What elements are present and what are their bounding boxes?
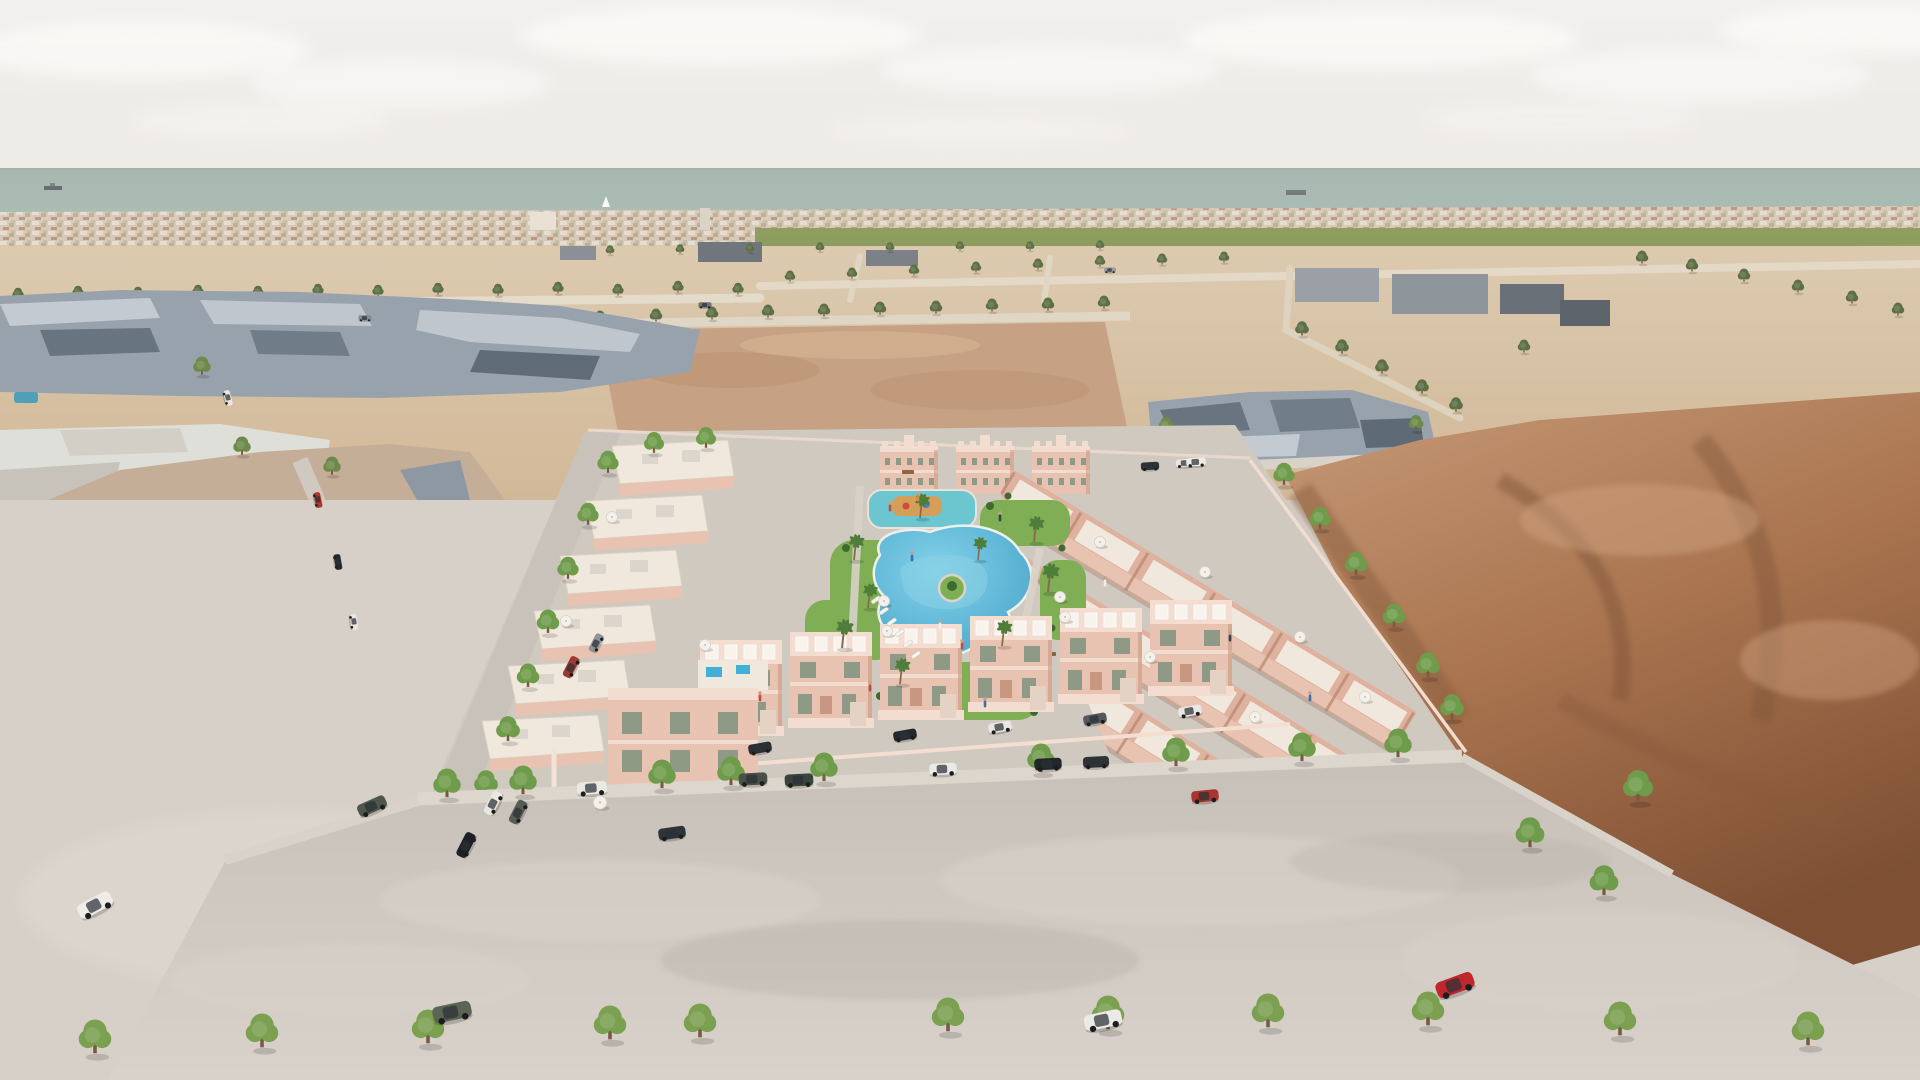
island-shrub <box>947 581 957 591</box>
plunge-pool <box>706 667 722 677</box>
front-townhouse <box>878 624 964 720</box>
road-highlight <box>380 860 820 940</box>
roof-tower <box>904 435 914 447</box>
person <box>983 697 986 707</box>
play-slide <box>903 503 910 510</box>
front-townhouse <box>1148 600 1234 696</box>
car <box>929 763 957 779</box>
white-building-roof <box>60 428 188 456</box>
car <box>1186 457 1206 468</box>
person <box>910 551 913 561</box>
crenellation <box>894 441 900 446</box>
apartment-blocks <box>880 435 1090 494</box>
cornice <box>608 688 758 700</box>
townhouse-roof <box>560 550 682 606</box>
person <box>888 501 891 511</box>
car <box>1083 756 1110 771</box>
person <box>998 511 1001 521</box>
townhouse-roof <box>586 495 708 551</box>
car <box>1141 462 1160 472</box>
person <box>960 639 963 649</box>
roof-tower <box>980 435 990 447</box>
road-shade <box>1290 832 1610 892</box>
car <box>784 773 813 789</box>
string-course <box>956 470 1014 473</box>
crenellation <box>1006 441 1012 446</box>
dirt-highlight <box>1740 620 1920 700</box>
crenellation <box>918 441 924 446</box>
person <box>758 691 761 701</box>
car <box>738 772 767 788</box>
townhouse-roof <box>612 440 734 496</box>
roof-tower <box>1056 435 1066 447</box>
aerial-render <box>0 0 1920 1080</box>
string-course <box>1032 470 1090 473</box>
person <box>1103 576 1106 586</box>
plunge-pool <box>736 665 750 674</box>
string-course <box>608 740 758 744</box>
crenellation <box>1082 441 1088 446</box>
person <box>938 619 941 629</box>
front-townhouse <box>788 632 874 728</box>
haze-overlay <box>0 0 1920 420</box>
crenellation <box>970 441 976 446</box>
person <box>916 491 919 501</box>
side-shade <box>1086 450 1090 494</box>
road-highlight <box>170 944 530 1016</box>
dirt-highlight <box>1520 484 1760 556</box>
road-shade <box>660 920 1140 1000</box>
crenellation <box>930 441 936 446</box>
person <box>1308 691 1311 701</box>
crenellation <box>1046 441 1052 446</box>
person <box>1228 631 1231 641</box>
side-shade <box>934 450 938 494</box>
crenellation <box>1070 441 1076 446</box>
crenellation <box>994 441 1000 446</box>
crenellation <box>1034 441 1040 446</box>
car <box>1034 758 1062 774</box>
crenellation <box>882 441 888 446</box>
person <box>868 681 871 691</box>
crenellation <box>958 441 964 446</box>
